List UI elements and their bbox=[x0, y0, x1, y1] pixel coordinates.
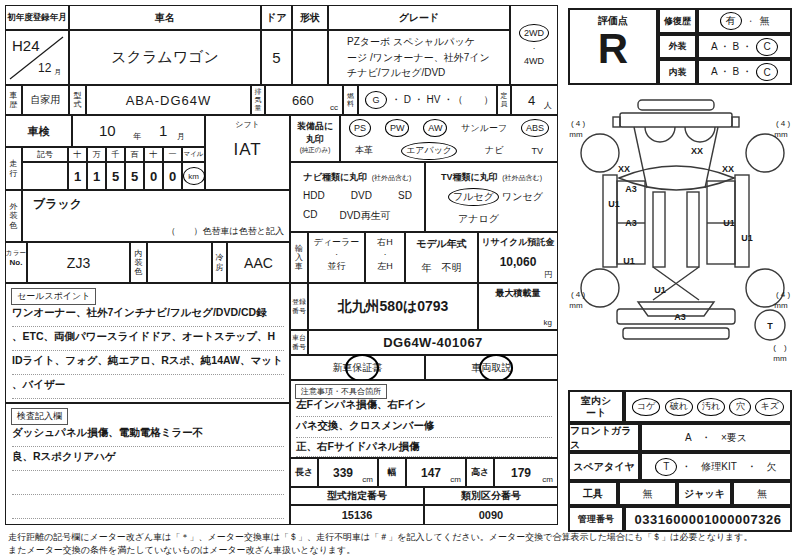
import-right-handle: 右H bbox=[366, 236, 404, 250]
navi-cd: CD bbox=[303, 209, 317, 223]
import-dot2: ・ bbox=[366, 250, 404, 261]
car-name-header: 車名 bbox=[69, 5, 261, 30]
length-cell: 339 cm bbox=[318, 458, 378, 487]
tire-depth-unit: mm bbox=[569, 301, 583, 310]
fuel-options: ・ D ・ HV ・（ ） bbox=[391, 93, 493, 107]
fuel-label: 燃料 bbox=[343, 85, 358, 115]
import-handle-cell: 右H ・ 左H bbox=[365, 232, 405, 283]
doors-header: ドア bbox=[261, 5, 292, 30]
import-dealer: ディーラー bbox=[309, 236, 364, 250]
equipment-items: PS PW AW サンルーフ ABS 本革 エアバック ナビ TV bbox=[340, 115, 558, 162]
mileage-sign-value bbox=[22, 162, 68, 190]
interior-seat-items: コゲ 破れ 汚れ 穴 キズ bbox=[624, 390, 792, 423]
inspection-month-unit: 月 bbox=[177, 131, 185, 142]
tire-depth-front-right: ( 4 ) bbox=[776, 119, 791, 128]
repair-yes-circled: 有 bbox=[720, 12, 742, 30]
length-unit: cm bbox=[362, 475, 373, 484]
shape-header: 形状 bbox=[292, 5, 328, 30]
model-year-cell: モデル年式 年 不明 bbox=[405, 232, 478, 283]
tire-depth-unit: mm bbox=[569, 130, 583, 139]
floor-bar-left bbox=[653, 192, 665, 267]
interior-grade-value: A ・ B ・ C bbox=[697, 59, 792, 85]
interior-color-value bbox=[147, 242, 212, 283]
height-unit: cm bbox=[542, 475, 553, 484]
capacity-unit: 人 bbox=[544, 100, 552, 111]
ac-label: 冷房 bbox=[212, 242, 227, 283]
caution-line: 左Fインパネ損傷、右Fイン bbox=[296, 398, 552, 417]
tools-label: 工具 bbox=[568, 481, 618, 506]
sales-points-section: セールスポイント ワンオーナー、社外7インチナビ/フルセグ/DVD/CD録 、E… bbox=[5, 283, 290, 403]
damage-mark: A3 bbox=[674, 312, 686, 322]
damage-mark: U1 bbox=[741, 233, 753, 243]
mileage-col-header: 百 bbox=[125, 147, 144, 162]
model-year-label: モデル年式 bbox=[406, 233, 477, 251]
wheel-front-right bbox=[746, 134, 784, 172]
mileage-col-header: 一 bbox=[163, 147, 182, 162]
damage-mark: A3 bbox=[625, 218, 637, 228]
shift-cell: シフト IAT bbox=[205, 115, 290, 190]
exterior-color-cell: ブラック （ ）色替車は色替と記入 bbox=[22, 190, 290, 242]
length-value: 339 bbox=[333, 466, 353, 480]
spare-depth-unit: mm bbox=[773, 354, 787, 363]
mileage-km-circled: km bbox=[183, 167, 205, 185]
class-no-label: 類別区分番号 bbox=[424, 487, 558, 505]
registration-no-value: 北九州580は0793 bbox=[308, 283, 478, 330]
drive-2wd-circled: 2WD bbox=[519, 24, 549, 42]
chassis-no-label: 車台番号 bbox=[290, 330, 308, 355]
drive-type-cell: 2WD ・ 4WD bbox=[510, 5, 558, 85]
class-no-value: 0090 bbox=[424, 505, 558, 525]
inspection-label: 車検 bbox=[5, 115, 72, 147]
max-load-label: 最大積載量 bbox=[479, 284, 557, 300]
first-registration-month-unit: 月 bbox=[54, 67, 61, 77]
inspection-month: 1 bbox=[159, 122, 167, 139]
equipment-label: 装備品に 丸印 (純正のみ) bbox=[290, 115, 340, 162]
front-glass-value: A ・ ×要ス bbox=[640, 423, 792, 452]
caution-line: パネ交換、クロスメンバー修 bbox=[296, 419, 552, 438]
seat-arc-left bbox=[645, 127, 675, 142]
first-registration-month: 12 bbox=[38, 61, 51, 75]
chassis-no-value: DG64W-401067 bbox=[308, 330, 558, 355]
model-code-label: 型式 bbox=[69, 85, 86, 115]
exterior-color-label: 外装色 bbox=[5, 190, 22, 242]
warranty-cell: 新車保証書 bbox=[290, 355, 425, 380]
recycle-cell: リサイクル預託金 10,060 円 bbox=[478, 232, 558, 283]
model-year-value: 年 不明 bbox=[406, 251, 477, 275]
mileage-digit: 5 bbox=[125, 162, 144, 190]
interior-color-label: 内装色 bbox=[130, 242, 147, 283]
doors-value: 5 bbox=[261, 30, 292, 85]
recycle-unit: 円 bbox=[544, 269, 552, 280]
inspector-line-empty bbox=[12, 498, 284, 519]
tv-analog: アナログ bbox=[458, 213, 499, 224]
exterior-grade-c-circled: C bbox=[756, 38, 778, 56]
drive-dot: ・ bbox=[531, 44, 538, 54]
inspector-notes-section: 検査記入欄 ダッシュパネル損傷、電動電格ミラー不 良、Rスポクリアハゲ bbox=[5, 403, 290, 525]
footer-note-line1: 走行距離の記号欄にメーター改ざん車は「＊」、メーター交換車は「＄」、走行不明車は… bbox=[8, 531, 792, 544]
navi-type-header-sub: (社外品含む) bbox=[372, 174, 412, 181]
displacement-value: 660 bbox=[292, 93, 314, 108]
interior-grade-ab: A ・ B ・ bbox=[711, 65, 752, 79]
history-value: 自家用 bbox=[22, 85, 69, 115]
height-label: 高さ bbox=[466, 458, 494, 487]
equipment-ps-circled: PS bbox=[349, 119, 371, 137]
mileage-col-header: 千 bbox=[106, 147, 125, 162]
mileage-col-header: 万 bbox=[87, 147, 106, 162]
wheel-front-left bbox=[581, 134, 619, 172]
equipment-airbag-circled: エアバック bbox=[401, 142, 457, 160]
registration-no-label: 登録番号 bbox=[290, 283, 308, 330]
side-rail-left bbox=[603, 175, 617, 267]
tv-fullseg-circled: フルセグ bbox=[448, 188, 499, 206]
navi-sd: SD bbox=[398, 190, 412, 201]
seat-tear-circled: 破れ bbox=[665, 398, 693, 416]
jack-label: ジャッキ bbox=[677, 481, 732, 506]
footer-note-line2: またメーター交換の条件を満たしていないものはメーター改ざん車扱いとなります。 bbox=[8, 544, 792, 557]
equipment-aw-circled: AW bbox=[423, 119, 447, 137]
exterior-grade-value: A ・ B ・ C bbox=[697, 34, 792, 59]
admin-no-value: 0331600001000007326 bbox=[624, 506, 792, 532]
interior-seat-label: 室内シート bbox=[568, 390, 624, 423]
height-value: 179 bbox=[511, 466, 531, 480]
import-label: 輸入車 bbox=[290, 232, 308, 283]
inspector-line: ダッシュパネル損傷、電動電格ミラー不 bbox=[12, 426, 284, 447]
displacement-label: 排気量 bbox=[251, 85, 265, 115]
shift-value: IAT bbox=[206, 140, 289, 160]
navi-type-header: ナビ種類に丸印 bbox=[304, 172, 368, 182]
type-no-label: 型式指定番号 bbox=[290, 487, 424, 505]
tv-type-header: TV種類に丸印 bbox=[441, 172, 498, 182]
spare-options: ・ 修理KIT ・ 欠 bbox=[681, 460, 776, 474]
mileage-digit: 1 bbox=[87, 162, 106, 190]
max-load-unit: kg bbox=[544, 318, 552, 327]
inspector-line-empty bbox=[12, 474, 284, 495]
shift-label: シフト bbox=[206, 116, 289, 130]
manual-circled: 車両取説 bbox=[472, 361, 512, 375]
damage-mark: XX bbox=[722, 164, 734, 174]
import-dealer-cell: ディーラー ・ 並行 bbox=[308, 232, 365, 283]
ac-value: AAC bbox=[227, 242, 290, 283]
tire-depth-unit: mm bbox=[774, 130, 788, 139]
exterior-grade-label: 外装 bbox=[658, 34, 697, 59]
recycle-label: リサイクル預託金 bbox=[479, 233, 557, 249]
seat-burn-circled: コゲ bbox=[632, 398, 660, 416]
damage-mark: U1 bbox=[623, 256, 635, 266]
shape-value bbox=[292, 30, 328, 85]
grade-line2: ージ /ワンオーナー、社外7イン bbox=[347, 50, 509, 66]
front-bumper bbox=[638, 100, 714, 110]
grade-header: グレード bbox=[328, 5, 510, 30]
navi-type-cell: ナビ種類に丸印 (社外品含む) HDD DVD SD CD DVD再生可 bbox=[290, 162, 425, 232]
caution-tag: 注意事項・不具合箇所 bbox=[295, 384, 387, 399]
tire-depth-rear-right: ( 4 ) bbox=[776, 290, 791, 299]
mileage-digit: 1 bbox=[68, 162, 87, 190]
repair-dot: ・ bbox=[747, 16, 755, 27]
exterior-color-note: （ ）色替車は色替と記入 bbox=[167, 225, 284, 238]
displacement-unit: cc bbox=[330, 103, 338, 112]
spare-tire-mark: T bbox=[767, 321, 773, 331]
mileage-unit-cell: km bbox=[182, 162, 205, 190]
height-cell: 179 cm bbox=[494, 458, 558, 487]
tv-type-header-sub: (社外品含む) bbox=[502, 174, 542, 181]
spare-tire-value: T ・ 修理KIT ・ 欠 bbox=[640, 452, 792, 481]
displacement-cell: 660 cc bbox=[265, 85, 343, 115]
rear-lower-panel bbox=[623, 328, 729, 339]
equipment-tv: TV bbox=[531, 146, 543, 156]
grade-line1: PZターボ スペシャルパッケ bbox=[347, 34, 509, 50]
color-no-label: カラー No. bbox=[5, 242, 27, 283]
history-label: 車歴 bbox=[5, 85, 22, 115]
damage-mark: XX bbox=[618, 164, 630, 174]
exterior-grade-ab: A ・ B ・ bbox=[711, 40, 752, 54]
mileage-digit: 0 bbox=[163, 162, 182, 190]
bonnet bbox=[620, 113, 732, 127]
tv-oneseg: ワンセグ bbox=[502, 190, 543, 204]
fuel-gasoline-circled: G bbox=[365, 91, 387, 109]
repair-no: 無 bbox=[760, 14, 770, 28]
repair-history-label: 修復歴 bbox=[658, 8, 697, 34]
interior-grade-c-circled: C bbox=[756, 63, 778, 81]
damage-mark: U1 bbox=[608, 199, 620, 209]
mirror-right bbox=[732, 117, 739, 127]
rear-brace bbox=[653, 267, 699, 300]
first-registration-year: H24 bbox=[12, 37, 40, 54]
mileage-digit: 0 bbox=[144, 162, 163, 190]
sales-line: 、バイザー bbox=[12, 378, 284, 399]
seat-stain-circled: 汚れ bbox=[697, 398, 725, 416]
footer-notes: 走行距離の記号欄にメーター改ざん車は「＊」、メーター交換車は「＄」、走行不明車は… bbox=[8, 531, 792, 556]
damage-mark: XX bbox=[691, 146, 703, 156]
grade-line3: チナビ/フルセグ/DVD bbox=[347, 65, 509, 81]
mileage-digit: 5 bbox=[106, 162, 125, 190]
sales-line: 、ETC、両側パワースライドドア、オートステップ、H bbox=[12, 330, 284, 351]
equipment-leather: 本革 bbox=[355, 144, 373, 157]
evaluation-cell: 評価点 R bbox=[568, 8, 658, 85]
tire-depth-front-left: ( 4 ) bbox=[571, 119, 586, 128]
sales-points-tag: セールスポイント bbox=[11, 288, 96, 305]
tire-depth-rear-left: ( 4 ) bbox=[571, 290, 586, 299]
color-no-value: ZJ3 bbox=[27, 242, 130, 283]
seat-scratch-circled: キズ bbox=[755, 398, 783, 416]
max-load-cell: 最大積載量 kg bbox=[478, 283, 558, 330]
navi-hdd: HDD bbox=[303, 190, 325, 201]
recycle-value: 10,060 bbox=[479, 249, 557, 269]
width-label: 幅 bbox=[378, 458, 406, 487]
interior-grade-label: 内装 bbox=[658, 59, 697, 85]
admin-no-label: 管理番号 bbox=[568, 506, 624, 532]
width-value: 147 bbox=[421, 466, 441, 480]
inspection-year: 10 bbox=[99, 122, 116, 139]
navi-dvd-play: DVD再生可 bbox=[339, 209, 390, 223]
equipment-sunroof: サンルーフ bbox=[461, 122, 507, 135]
sales-line: ワンオーナー、社外7インチナビ/フルセグ/DVD/CD録 bbox=[12, 306, 284, 327]
mileage-mile-header: マイル bbox=[182, 147, 205, 162]
repair-history-value: 有 ・ 無 bbox=[697, 8, 792, 34]
auction-sheet: 初年度登録年月 車名 ドア 形状 グレード H24 12 月 スクラムワゴン 5… bbox=[0, 0, 800, 557]
grade-value: PZターボ スペシャルパッケ ージ /ワンオーナー、社外7イン チナビ/フルセグ… bbox=[328, 30, 510, 85]
a-pillar-left bbox=[634, 127, 647, 188]
jack-value: 無 bbox=[732, 481, 792, 506]
caution-line: 正、右Fサイドパネル損傷 bbox=[296, 440, 552, 457]
inspection-year-unit: 年 bbox=[133, 131, 141, 142]
drive-4wd: 4WD bbox=[524, 56, 544, 66]
manual-cell: 車両取説 bbox=[425, 355, 558, 380]
equipment-navi: ナビ bbox=[485, 144, 503, 157]
seat-hole-circled: 穴 bbox=[729, 398, 751, 416]
length-label: 長さ bbox=[290, 458, 318, 487]
first-registration-cell: H24 12 月 bbox=[5, 30, 69, 85]
model-code-value: ABA-DG64W bbox=[86, 85, 251, 115]
damage-mark: U1 bbox=[723, 218, 735, 228]
mileage-sign-header: 記号 bbox=[22, 147, 68, 162]
spare-depth-bracket: ( ) bbox=[773, 343, 787, 352]
inspector-notes-tag: 検査記入欄 bbox=[11, 408, 68, 425]
mileage-label: 走行 bbox=[5, 147, 22, 190]
equipment-abs-circled: ABS bbox=[521, 119, 549, 137]
equipment-pw-circled: PW bbox=[385, 119, 410, 137]
floor-bar-right bbox=[687, 192, 699, 267]
exterior-color-value: ブラック bbox=[33, 196, 82, 213]
mirror-left bbox=[613, 117, 620, 127]
first-registration-header: 初年度登録年月 bbox=[5, 5, 69, 30]
capacity-cell: 4 人 bbox=[511, 85, 558, 115]
capacity-label: 定員 bbox=[497, 85, 511, 115]
damage-mark: A3 bbox=[625, 184, 637, 194]
width-cell: 147 cm bbox=[406, 458, 466, 487]
spare-t-circled: T bbox=[655, 458, 677, 476]
fuel-cell: G ・ D ・ HV ・（ ） bbox=[358, 85, 497, 115]
inspection-value: 10 年 1 月 bbox=[72, 115, 205, 147]
width-unit: cm bbox=[450, 475, 461, 484]
import-parallel: 並行 bbox=[309, 260, 364, 274]
car-damage-diagram: XX XX XX A3 U1 A3 U1 U1 U1 U1 A3 T ( 4 )… bbox=[556, 92, 798, 392]
mileage-col-header: 十 bbox=[144, 147, 163, 162]
inspector-line: 良、Rスポクリアハゲ bbox=[12, 450, 284, 471]
sales-line: IDライト、フォグ、純エアロ、Rスポ、純14AW、マット bbox=[12, 354, 284, 375]
seat-arc-right bbox=[685, 127, 715, 142]
mileage-col-header: 十 bbox=[68, 147, 87, 162]
tv-type-cell: TV種類に丸印 (社外品含む) フルセグ ワンセグ アナログ bbox=[425, 162, 558, 232]
front-glass-label: フロントガラス bbox=[568, 423, 640, 452]
capacity-value: 4 bbox=[528, 93, 535, 108]
evaluation-score: R bbox=[570, 28, 656, 70]
import-dot: ・ bbox=[309, 250, 364, 261]
spare-tire-label: スペアタイヤ bbox=[568, 452, 640, 481]
side-rail-right bbox=[735, 175, 749, 267]
import-left-handle: 左H bbox=[366, 260, 404, 274]
damage-mark: U1 bbox=[654, 285, 666, 295]
car-name-value: スクラムワゴン bbox=[69, 30, 261, 85]
navi-dvd: DVD bbox=[351, 190, 372, 201]
tools-value: 無 bbox=[618, 481, 677, 506]
wheel-rear-left bbox=[581, 269, 619, 307]
tire-depth-unit: mm bbox=[774, 301, 788, 310]
caution-section: 注意事項・不具合箇所 左Fインパネ損傷、右Fイン パネ交換、クロスメンバー修 正… bbox=[290, 380, 558, 458]
type-no-value: 15136 bbox=[290, 505, 424, 525]
warranty-circled: 新車保証書 bbox=[333, 361, 383, 375]
